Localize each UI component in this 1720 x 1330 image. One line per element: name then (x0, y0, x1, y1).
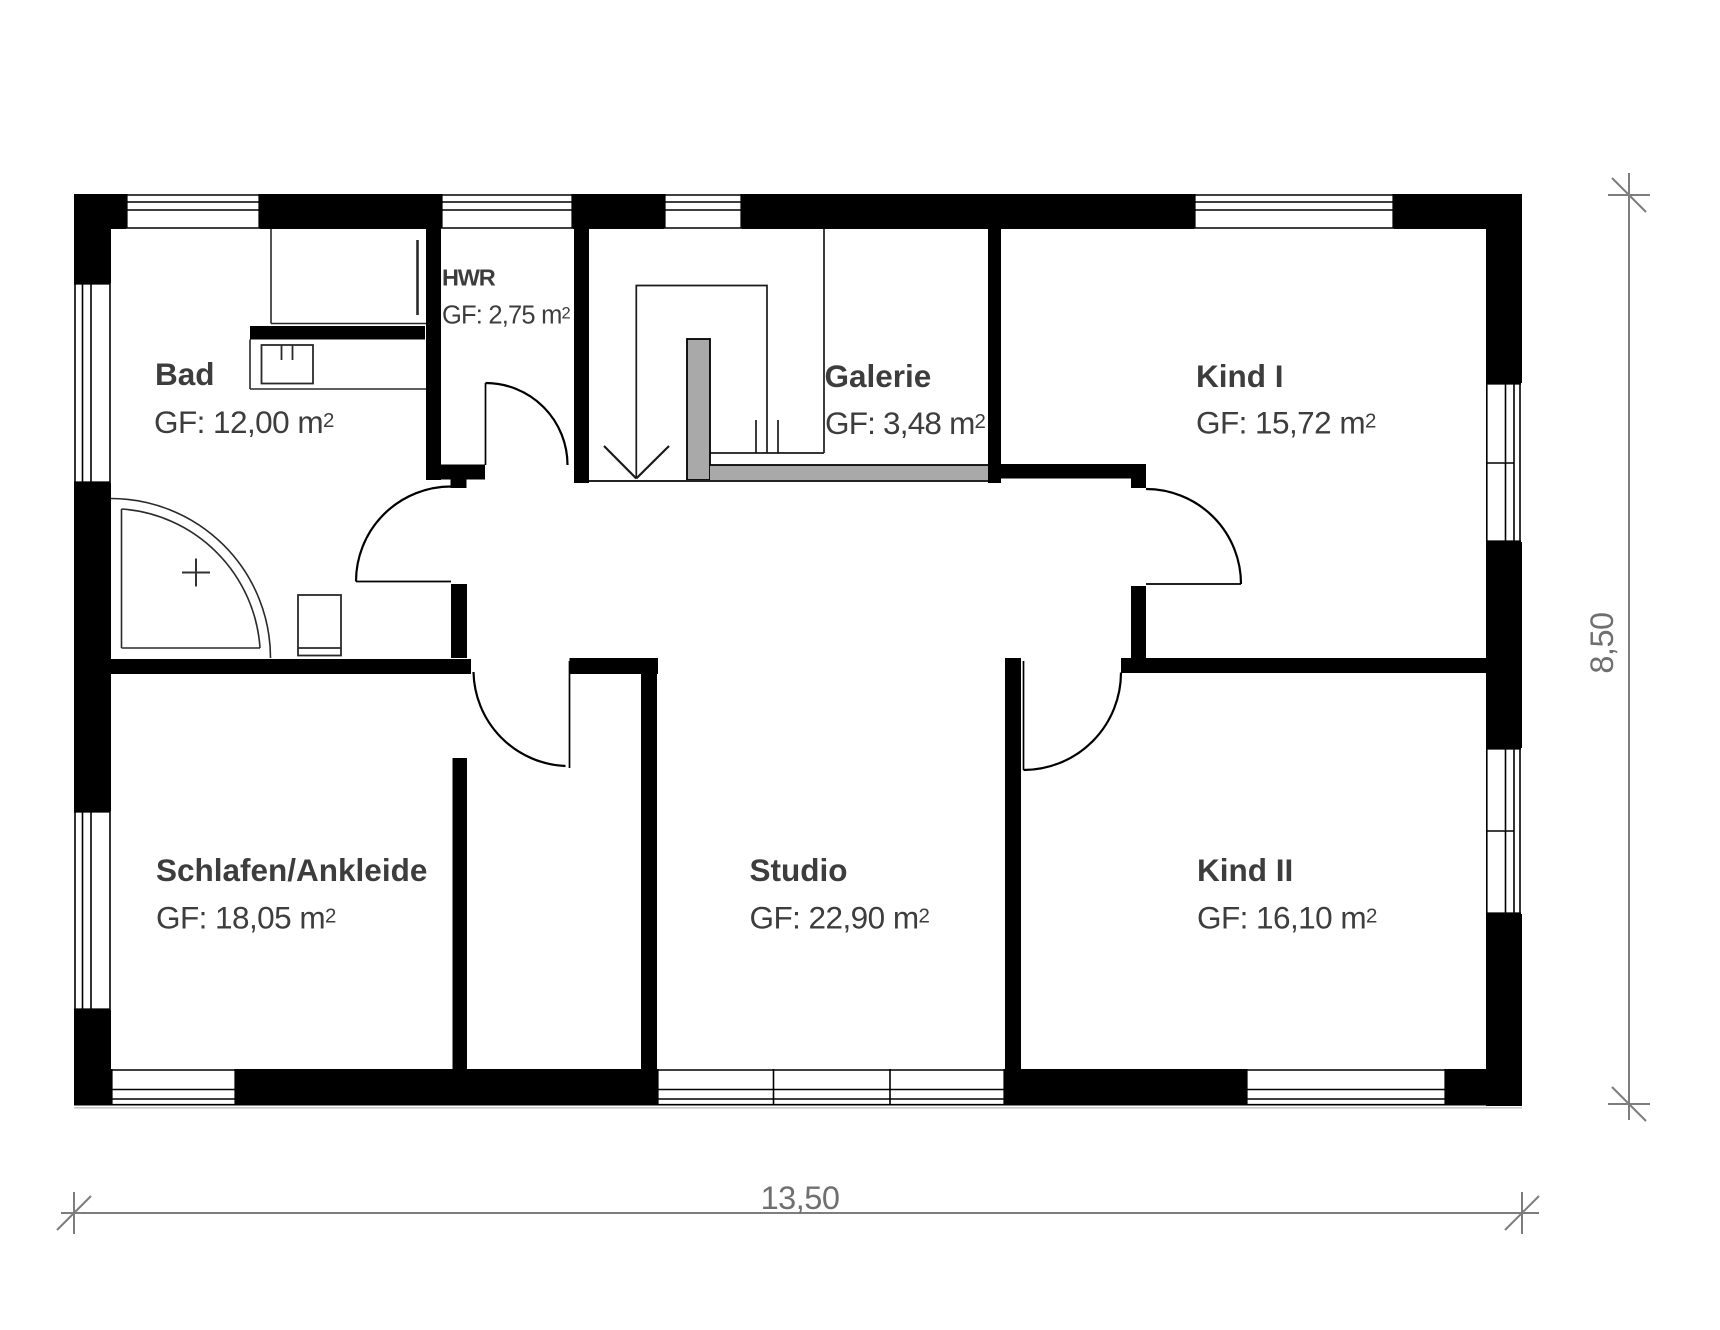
svg-text:GF: 22,90 m2: GF: 22,90 m2 (750, 900, 930, 936)
svg-text:GF: 2,75 m2: GF: 2,75 m2 (442, 302, 571, 330)
svg-text:Studio: Studio (750, 852, 848, 888)
svg-text:GF: 12,00 m2: GF: 12,00 m2 (154, 404, 334, 440)
svg-text:Kind I: Kind I (1196, 358, 1284, 394)
svg-text:HWR: HWR (442, 265, 496, 291)
svg-text:GF: 3,48 m2: GF: 3,48 m2 (825, 405, 986, 441)
svg-text:Schlafen/Ankleide: Schlafen/Ankleide (156, 852, 427, 888)
svg-text:Galerie: Galerie (825, 358, 932, 394)
svg-text:GF: 16,10 m2: GF: 16,10 m2 (1197, 900, 1377, 936)
svg-text:Bad: Bad (155, 356, 215, 392)
svg-text:Kind II: Kind II (1197, 852, 1293, 888)
svg-text:GF: 15,72 m2: GF: 15,72 m2 (1196, 405, 1376, 441)
svg-text:GF: 18,05 m2: GF: 18,05 m2 (156, 900, 336, 936)
svg-text:13,50: 13,50 (761, 1180, 840, 1216)
svg-text:8,50: 8,50 (1584, 612, 1620, 673)
